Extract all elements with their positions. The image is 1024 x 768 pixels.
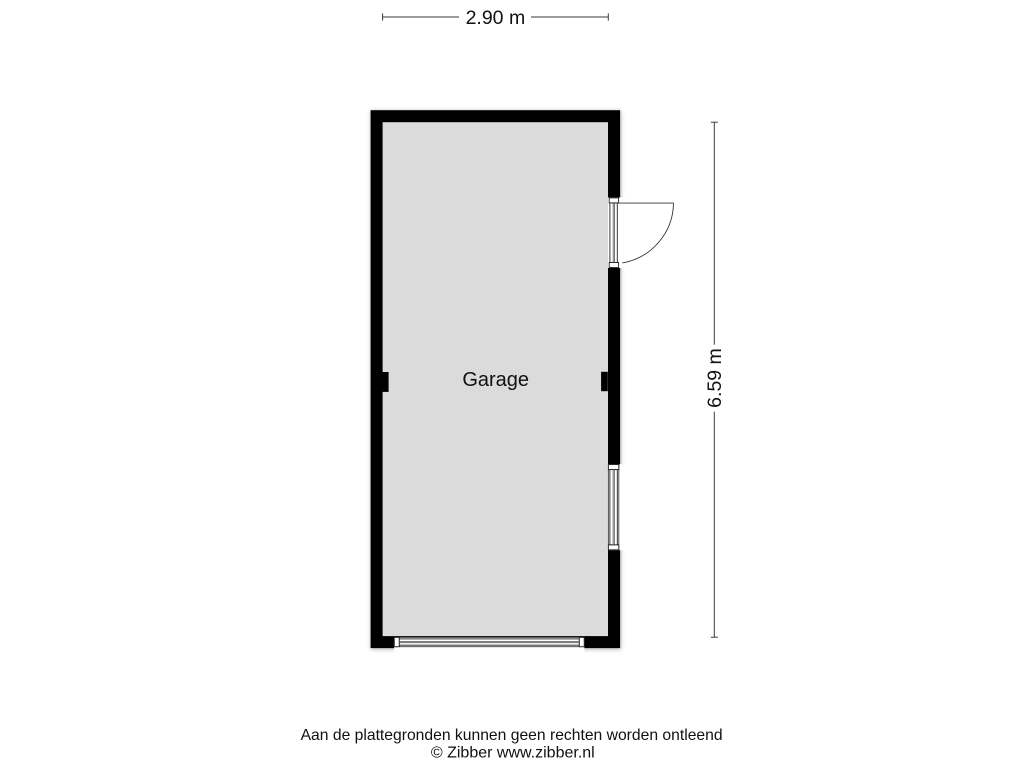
- svg-text:2.90 m: 2.90 m: [466, 7, 526, 29]
- svg-text:Garage: Garage: [462, 369, 529, 391]
- svg-text:6.59 m: 6.59 m: [704, 348, 726, 408]
- svg-text:Aan de plattegronden kunnen ge: Aan de plattegronden kunnen geen rechten…: [301, 727, 723, 744]
- svg-text:© Zibber www.zibber.nl: © Zibber www.zibber.nl: [431, 744, 595, 761]
